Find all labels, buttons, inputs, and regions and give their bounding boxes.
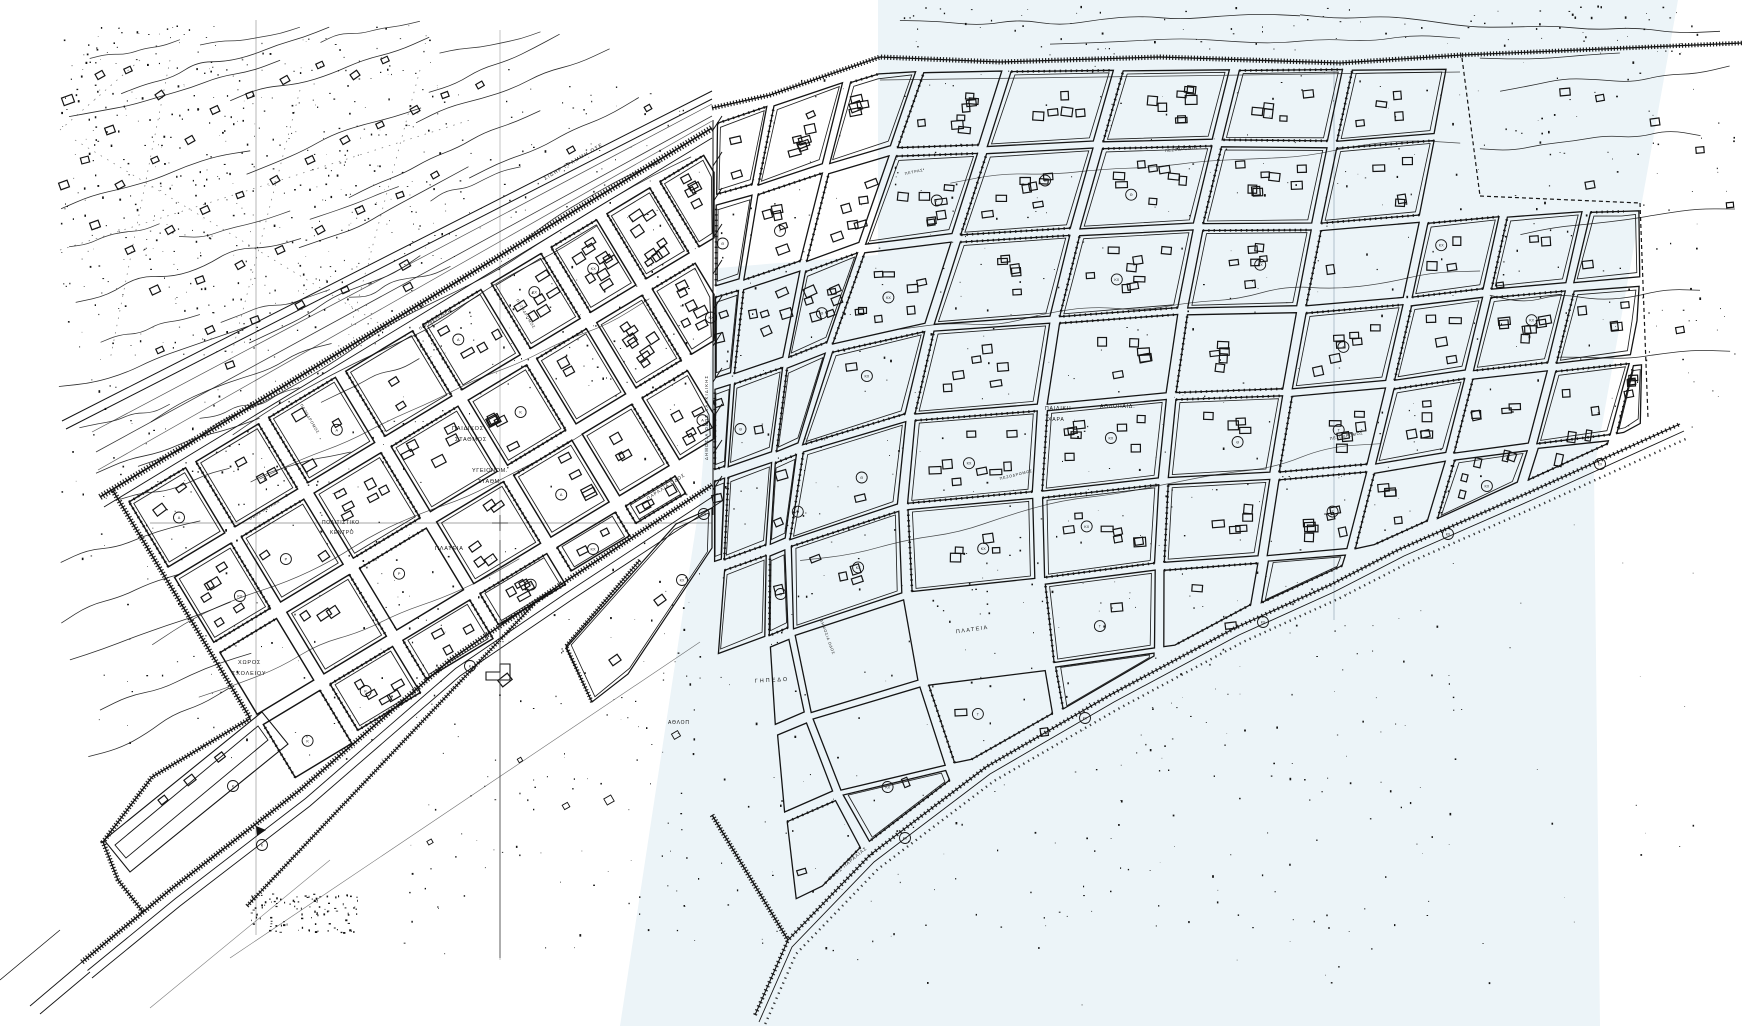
- svg-text:Κ: Κ: [232, 785, 235, 789]
- svg-text:ΚΧ: ΚΧ: [981, 547, 986, 551]
- svg-text:Θ: Θ: [821, 312, 824, 316]
- svg-text:ΚΧ: ΚΧ: [591, 267, 597, 271]
- svg-text:ΚΧ: ΚΧ: [967, 462, 972, 466]
- svg-text:ΣΤΑΘΜ.: ΣΤΑΘΜ.: [478, 479, 502, 485]
- svg-text:Α: Α: [457, 338, 460, 342]
- svg-text:Α: Α: [336, 428, 339, 432]
- svg-text:ΚΧ: ΚΧ: [903, 837, 908, 841]
- svg-text:ΚΧ: ΚΧ: [1529, 319, 1534, 323]
- svg-text:ΚΧ: ΚΧ: [1261, 621, 1266, 625]
- svg-text:Θ: Θ: [1044, 179, 1047, 183]
- svg-text:ΚΧ: ΚΧ: [680, 579, 685, 583]
- svg-text:ΑΘΛΟΠ: ΑΘΛΟΠ: [668, 720, 690, 726]
- svg-text:Ρ: Ρ: [285, 558, 288, 562]
- svg-text:ΚΧ: ΚΧ: [1083, 717, 1088, 721]
- svg-text:ΚΧ: ΚΧ: [590, 548, 596, 552]
- svg-text:Θ: Θ: [860, 476, 863, 480]
- svg-text:ΚΧ: ΚΧ: [532, 291, 538, 295]
- svg-text:ΠΛΑΤΕΙΑ: ΠΛΑΤΕΙΑ: [435, 546, 464, 552]
- svg-text:ΚΧ: ΚΧ: [701, 513, 706, 517]
- svg-text:ΠΟΛΙΤΙΣΤΙΚΟ: ΠΟΛΙΤΙΣΤΙΚΟ: [322, 520, 360, 526]
- svg-text:ΚΧ: ΚΧ: [1109, 437, 1114, 441]
- svg-text:ΚΧ: ΚΧ: [886, 296, 891, 300]
- svg-text:ΧΑΡΑ: ΧΑΡΑ: [1048, 417, 1065, 423]
- svg-text:ΚΧ: ΚΧ: [1446, 533, 1451, 537]
- svg-text:ΚΧ: ΚΧ: [1485, 485, 1490, 489]
- svg-text:ΚΧ: ΚΧ: [1084, 525, 1089, 529]
- svg-text:Θ: Θ: [1130, 193, 1133, 197]
- svg-text:ΚΕΝΤΡΟ: ΚΕΝΤΡΟ: [330, 530, 354, 536]
- svg-text:ΧΩΡΟΣ: ΧΩΡΟΣ: [238, 660, 261, 666]
- svg-text:ΔΗΜΟΣΙΑ ΟΔΟΣ ΧΑΛΚΙΔΙΚΗΣ: ΔΗΜΟΣΙΑ ΟΔΟΣ ΧΑΛΚΙΔΙΚΗΣ: [704, 375, 709, 460]
- svg-text:Θ: Θ: [739, 428, 742, 432]
- svg-text:ΚΧ: ΚΧ: [885, 786, 890, 790]
- svg-text:ΚΧ: ΚΧ: [1439, 244, 1444, 248]
- svg-text:ΚΧ: ΚΧ: [1258, 263, 1263, 267]
- svg-text:ΚΧ: ΚΧ: [1598, 463, 1603, 467]
- svg-text:Α: Α: [178, 516, 181, 520]
- svg-text:ΚΧ: ΚΧ: [865, 375, 870, 379]
- svg-text:ΣΤΑΘΜΟΣ: ΣΤΑΘΜΟΣ: [455, 437, 487, 443]
- svg-text:Θ: Θ: [721, 242, 724, 246]
- svg-text:ΠΑΙΔΙΚΟΣ: ΠΑΙΔΙΚΟΣ: [452, 426, 484, 432]
- svg-text:ΚΧ: ΚΧ: [856, 566, 861, 570]
- svg-text:ΑΘΛΟΠΑΙΔ.: ΑΘΛΟΠΑΙΔ.: [1100, 404, 1135, 410]
- svg-text:Θ: Θ: [1236, 441, 1239, 445]
- svg-text:ΥΓΕΙΟΝΟΜ.: ΥΓΕΙΟΝΟΜ.: [472, 468, 508, 474]
- svg-text:ΠΑΙΔΙΚΗ: ΠΑΙΔΙΚΗ: [1045, 406, 1071, 412]
- svg-text:Ρ: Ρ: [529, 583, 532, 587]
- svg-text:ΚΧ: ΚΧ: [1114, 278, 1119, 282]
- svg-text:Κ: Κ: [364, 690, 367, 694]
- svg-text:Α: Α: [560, 493, 563, 497]
- svg-text:Θ: Θ: [779, 593, 782, 597]
